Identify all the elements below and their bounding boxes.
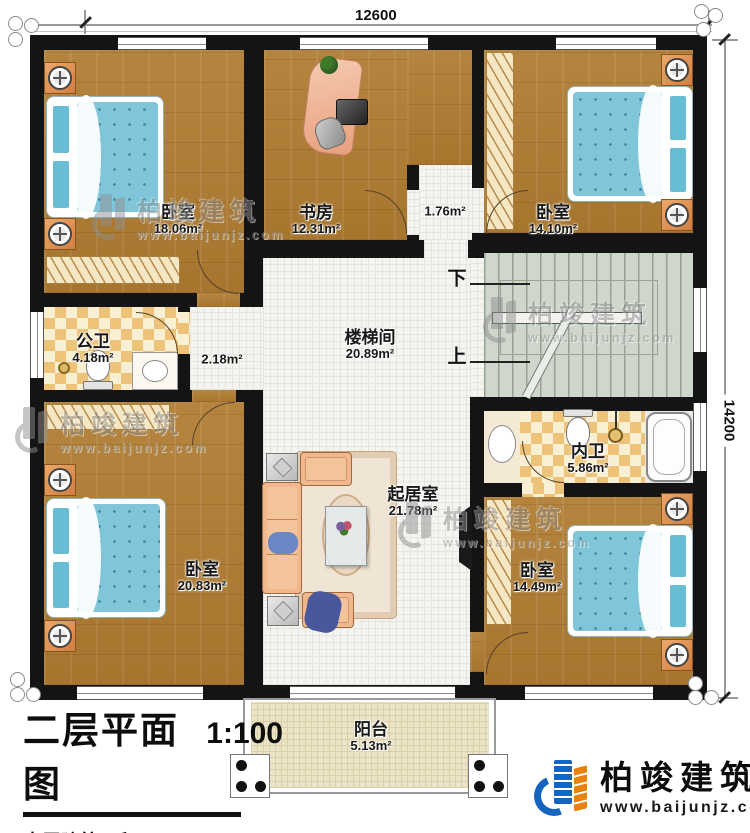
room-name: 内卫: [567, 442, 608, 461]
lamp-icon: [48, 66, 72, 90]
room-label-bedroom-tl: 卧室 18.06m²: [154, 203, 202, 237]
bed: [567, 525, 693, 637]
door-gap-bedroom-tr: [472, 188, 484, 233]
room-name: 起居室: [388, 485, 439, 504]
wardrobe: [486, 499, 512, 625]
bed-pillow: [51, 104, 71, 154]
lamp-icon: [665, 643, 689, 667]
room-name: 书房: [292, 203, 340, 222]
room-name: 卧室: [529, 203, 577, 222]
armchair: [300, 452, 352, 486]
dim-tick: [79, 16, 91, 28]
brand-text: 柏竣建筑 www.baijunjz.com: [600, 761, 750, 817]
stairs-up-line: [470, 361, 530, 363]
brand-name: 柏竣建筑: [600, 761, 750, 794]
lamp-icon: [665, 203, 689, 227]
nightstand: [44, 218, 76, 250]
window-left-public-bath: [30, 312, 44, 378]
vestibule-floor: [190, 307, 263, 390]
balcony-post-right: [468, 754, 508, 798]
room-area: 20.89m²: [345, 347, 396, 362]
bed-blanket: [71, 95, 101, 220]
room-label-living: 起居室 21.78m²: [388, 485, 439, 519]
room-name: 卧室: [154, 203, 202, 222]
bathtub: [646, 412, 692, 482]
brand-url: www.baijunjz.com: [600, 799, 750, 817]
room-area: 14.10m²: [529, 222, 577, 237]
window-right-ensuite: [693, 403, 707, 471]
room-area: 14.49m²: [513, 580, 561, 595]
title-block: 二层平面图 1:100 本层建筑面积：163.45m² 层高：3.3m: [23, 700, 283, 833]
room-name: 公卫: [72, 332, 113, 351]
room-name: 阳台: [350, 720, 391, 739]
dim-right-label: 14200: [720, 395, 737, 447]
stairs-down-line: [470, 283, 530, 285]
study-floor-strip: [407, 50, 472, 165]
room-area: 2.18m²: [201, 353, 242, 368]
door-gap-bedroom-tl: [197, 293, 240, 307]
room-area: 18.06m²: [154, 222, 202, 237]
room-label-bedroom-tr: 卧室 14.10m²: [529, 203, 577, 237]
title-underline: [23, 812, 241, 817]
nightstand: [44, 620, 76, 652]
sink: [488, 425, 516, 463]
room-area: 20.83m²: [178, 579, 226, 594]
nightstand: [661, 493, 693, 525]
dim-line-right: [724, 40, 726, 698]
shower-head-icon: [608, 428, 623, 443]
room-label-balcony: 阳台 5.13m²: [350, 720, 391, 754]
window-top-bedroom-tr: [556, 37, 656, 50]
door-gap-public-bath: [178, 312, 190, 354]
room-label-public-bath: 公卫 4.18m²: [72, 332, 113, 366]
bed: [46, 498, 166, 618]
corner-marker: [686, 676, 726, 708]
nightstand: [44, 62, 76, 94]
floor-plan-page: 下 上: [0, 0, 750, 833]
hall-stairs-opening: [470, 258, 484, 397]
bed-pillow: [51, 159, 71, 209]
room-name: 卧室: [513, 561, 561, 580]
armchair-cushion: [305, 457, 347, 481]
door-gap-corridor-hall: [424, 240, 468, 258]
person-figure: [268, 532, 298, 554]
bed-pillow: [668, 533, 688, 579]
dim-line-top: [30, 24, 712, 26]
room-name: 楼梯间: [345, 328, 396, 347]
sink: [142, 360, 168, 382]
door-gap-study: [407, 190, 419, 235]
floor-drain-icon: [58, 362, 70, 374]
door-gap-bedroom-br: [470, 632, 484, 672]
window-bottom-bedroom-br: [525, 686, 653, 700]
room-name: 卧室: [178, 560, 226, 579]
plan-scale: 1:100: [206, 717, 283, 751]
post-dot: [493, 781, 504, 792]
room-area: 5.86m²: [567, 461, 608, 476]
room-label-stair-hall: 楼梯间 20.89m²: [345, 328, 396, 362]
bed-blanket: [71, 497, 101, 620]
floor-area-line: 本层建筑面积：163.45m²: [23, 827, 283, 833]
wardrobe: [46, 404, 170, 430]
bed-pillow: [51, 560, 71, 610]
corner-marker: [686, 4, 726, 54]
nightstand: [661, 639, 693, 671]
room-label-bedroom-br: 卧室 14.49m²: [513, 561, 561, 595]
lamp-icon: [665, 58, 689, 82]
door-gap-bedroom-bl: [192, 390, 236, 402]
brand-logo-icon: [534, 760, 590, 818]
room-area: 12.31m²: [292, 222, 340, 237]
tv-on-wall: [459, 505, 472, 571]
room-area: 4.18m²: [72, 351, 113, 366]
bed-blanket: [638, 524, 668, 638]
coffee-table: [325, 506, 367, 566]
nightstand: [661, 54, 693, 86]
plant-icon: [320, 56, 338, 74]
post-dot: [474, 781, 485, 792]
dim-top-label: 12600: [350, 7, 402, 24]
lamp-icon: [48, 222, 72, 246]
lamp-icon: [48, 468, 72, 492]
bed-blanket: [638, 85, 668, 204]
room-label-bedroom-bl: 卧室 20.83m²: [178, 560, 226, 594]
bed: [567, 86, 693, 202]
stairs-up-label: 上: [447, 342, 466, 369]
desk-monitor: [336, 99, 368, 125]
toilet-tank: [83, 381, 113, 390]
lamp-icon: [48, 624, 72, 648]
side-table: [266, 453, 298, 481]
room-label-ensuite: 内卫 5.86m²: [567, 442, 608, 476]
bed-pillow: [668, 146, 688, 194]
window-top-bedroom-tl: [118, 37, 206, 50]
lamp-icon: [665, 497, 689, 521]
window-top-study: [300, 37, 428, 50]
room-label-corridor: 1.76m²: [424, 205, 465, 220]
toilet-tank: [563, 409, 593, 417]
brand-logo: 柏竣建筑 www.baijunjz.com: [534, 760, 750, 818]
door-gap-ensuite: [522, 483, 564, 497]
room-area: 21.78m²: [388, 504, 439, 519]
room-area: 5.13m²: [350, 739, 391, 754]
corner-marker: [8, 16, 48, 48]
nightstand: [44, 464, 76, 496]
room-label-study: 书房 12.31m²: [292, 203, 340, 237]
bed: [46, 96, 164, 218]
nightstand: [661, 199, 693, 231]
room-label-vestibule: 2.18m²: [201, 353, 242, 368]
corridor-floor: [419, 165, 472, 240]
window-bottom-bedroom-bl: [77, 686, 203, 700]
stairs-down-label: 下: [447, 264, 466, 291]
bed-pillow: [51, 506, 71, 556]
post-dot: [474, 760, 485, 771]
bed-pillow: [668, 94, 688, 142]
table-flowers: [336, 520, 352, 536]
room-area: 1.76m²: [424, 205, 465, 220]
wardrobe: [46, 256, 180, 284]
plan-title: 二层平面图: [23, 700, 192, 808]
side-table: [267, 596, 299, 626]
shower-pipe: [615, 411, 617, 429]
window-right-stairs: [693, 288, 707, 352]
dim-line-top-2: [30, 31, 712, 32]
bed-pillow: [668, 583, 688, 629]
